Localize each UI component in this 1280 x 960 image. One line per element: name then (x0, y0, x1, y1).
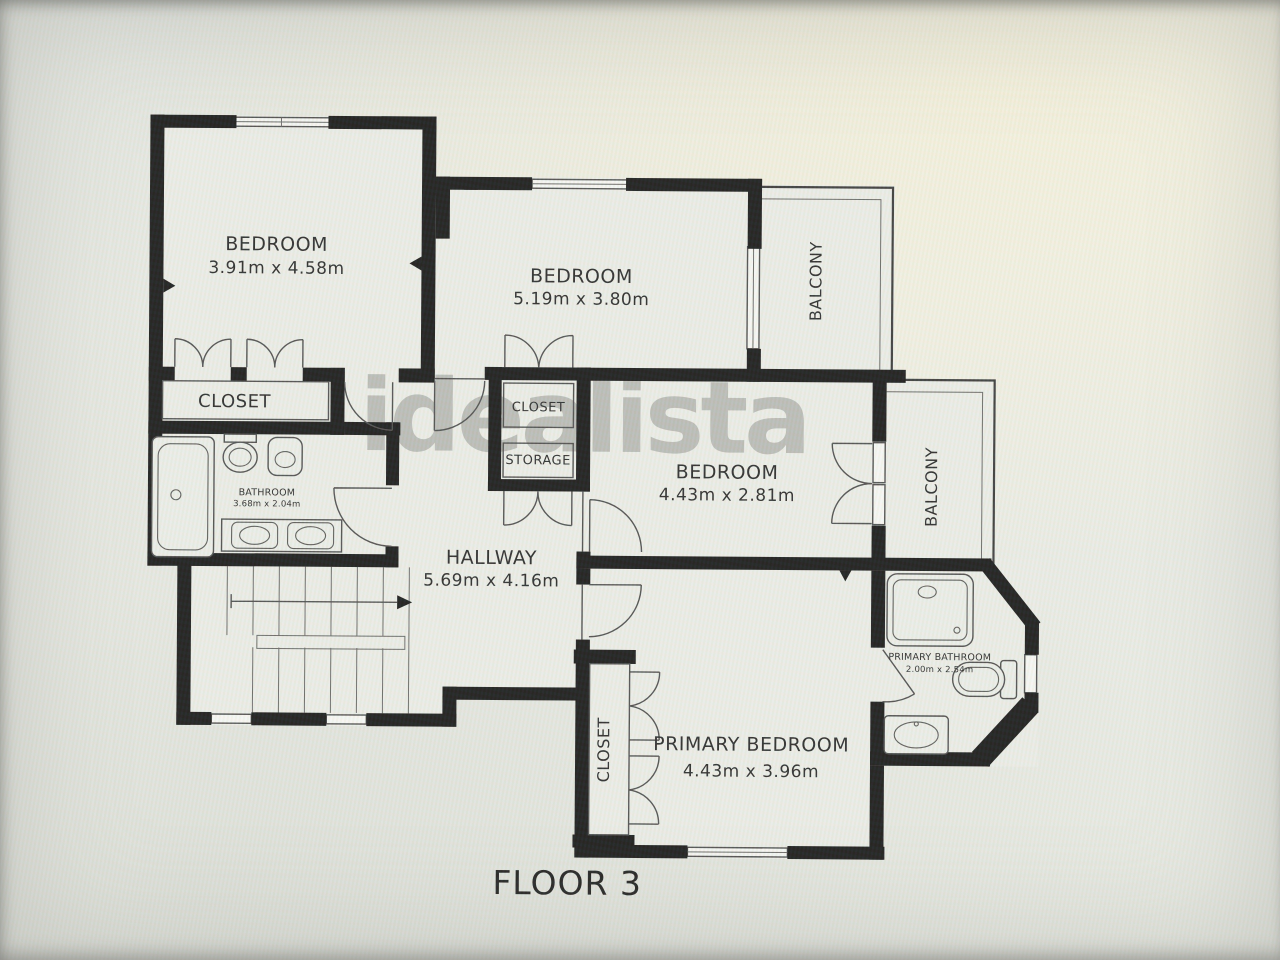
room-label-primary-bedroom: PRIMARY BEDROOM (653, 733, 849, 756)
room-dims-hallway: 5.69m x 4.16m (423, 570, 559, 591)
floor-plan: idealista (0, 0, 1280, 960)
room-label-bathroom: BATHROOM (239, 487, 296, 498)
shower-tray (887, 574, 974, 647)
room-dims-primary-bedroom: 4.43m x 3.96m (683, 761, 819, 782)
toilet-tank (224, 434, 256, 442)
room-label-bedroom-top-left: BEDROOM (225, 233, 328, 256)
floor-title: FLOOR 3 (492, 863, 642, 903)
label-closet-hall: CLOSET (512, 400, 566, 415)
room-dims-primary-bathroom: 2.00m x 2.54m (906, 665, 974, 675)
window (1025, 655, 1037, 693)
room-label-bedroom-middle: BEDROOM (676, 461, 779, 484)
french-door-panel (873, 443, 885, 483)
label-closet-primary: CLOSET (594, 717, 613, 782)
french-door-panel (873, 485, 885, 525)
room-label-hallway: HALLWAY (446, 547, 537, 570)
window-mullion (532, 184, 628, 185)
label-closet-left: CLOSET (198, 391, 272, 413)
window-mullion (753, 247, 754, 349)
label-storage-hall: STORAGE (505, 453, 570, 468)
window (211, 714, 251, 723)
room-dims-bathroom: 3.68m x 2.04m (233, 499, 301, 509)
label-balcony-lower: BALCONY (922, 447, 942, 527)
room-label-primary-bathroom: PRIMARY BATHROOM (888, 652, 991, 664)
floor-plan-photo: idealista (0, 0, 1280, 960)
bathtub (151, 437, 214, 557)
room-dims-bedroom-middle: 4.43m x 2.81m (659, 485, 795, 506)
label-balcony-upper: BALCONY (806, 241, 826, 321)
room-dims-bedroom-top-left: 3.91m x 4.58m (208, 258, 344, 279)
floor-plan-svg: idealista (0, 0, 1280, 960)
toilet (223, 442, 257, 472)
room-dims-bedroom-top-middle: 5.19m x 3.80m (513, 289, 649, 310)
room-label-bedroom-top-middle: BEDROOM (530, 265, 633, 288)
window-mullion (687, 852, 787, 853)
window (326, 715, 366, 724)
bidet (268, 437, 302, 475)
room-floor-balcony-upper (758, 185, 895, 376)
